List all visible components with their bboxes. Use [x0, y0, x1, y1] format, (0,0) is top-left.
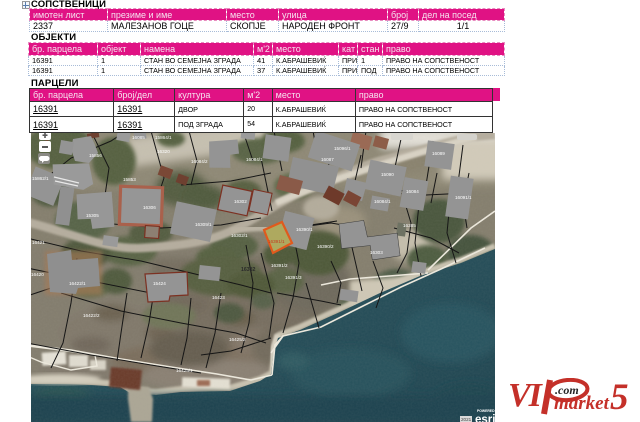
svg-text:POWERED BY: POWERED BY: [477, 409, 495, 413]
svg-text:16420: 16420: [31, 272, 44, 277]
svg-text:16091/1: 16091/1: [455, 195, 472, 200]
svg-text:16422/2: 16422/2: [83, 313, 100, 318]
svg-text:15305: 15305: [86, 213, 99, 218]
svg-text:15090: 15090: [381, 172, 394, 177]
svg-text:16084: 16084: [406, 189, 419, 194]
svg-text:16302: 16302: [234, 199, 247, 204]
svg-text:15096/1: 15096/1: [334, 146, 351, 151]
svg-text:16085: 16085: [132, 135, 145, 140]
svg-text:16423: 16423: [212, 295, 225, 300]
svg-text:16382: 16382: [241, 267, 256, 273]
svg-text:16390/1: 16390/1: [296, 227, 313, 232]
svg-text:16087: 16087: [321, 157, 334, 162]
svg-text:16391/1: 16391/1: [268, 239, 285, 244]
svg-text:15853: 15853: [123, 177, 136, 182]
svg-text:16089: 16089: [432, 151, 445, 156]
svg-text:16309/1: 16309/1: [195, 222, 212, 227]
svg-text:16422/1: 16422/1: [69, 281, 86, 286]
svg-text:16425/1: 16425/1: [176, 368, 193, 373]
svg-text:16421: 16421: [32, 240, 45, 245]
svg-text:16425/2: 16425/2: [229, 337, 246, 342]
svg-text:16084/1: 16084/1: [374, 199, 391, 204]
svg-text:esri: esri: [475, 414, 495, 422]
svg-text:16302/1: 16302/1: [231, 233, 248, 238]
svg-text:16303: 16303: [370, 250, 383, 255]
svg-text:16390/2: 16390/2: [317, 244, 334, 249]
svg-text:15424: 15424: [153, 281, 166, 286]
svg-text:16320: 16320: [157, 149, 170, 154]
svg-text:16084/1: 16084/1: [246, 157, 263, 162]
svg-text:2021: 2021: [461, 417, 472, 422]
svg-text:16385: 16385: [403, 223, 416, 228]
svg-text:15862/1: 15862/1: [32, 176, 49, 181]
svg-text:15856: 15856: [89, 153, 102, 158]
svg-text:16084/2: 16084/2: [191, 159, 208, 164]
svg-text:16306: 16306: [143, 205, 156, 210]
svg-text:16391/3: 16391/3: [285, 275, 302, 280]
svg-text:15864/1: 15864/1: [155, 135, 172, 140]
svg-text:16391/2: 16391/2: [271, 263, 288, 268]
